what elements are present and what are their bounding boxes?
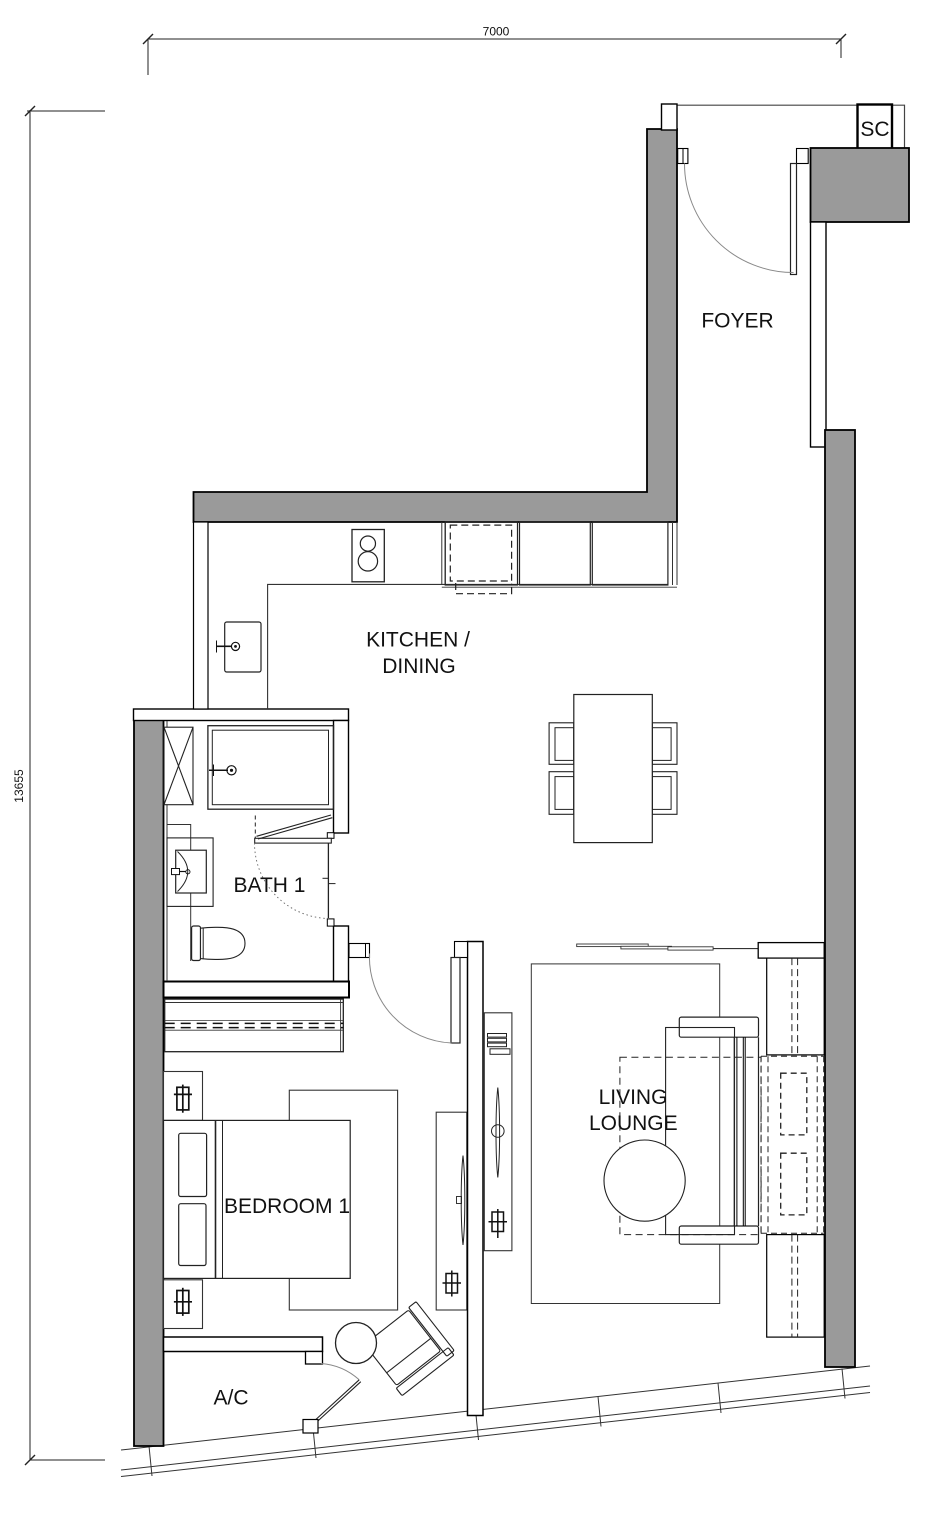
svg-text:LIVING: LIVING (599, 1086, 668, 1109)
svg-text:DINING: DINING (382, 655, 456, 678)
svg-text:7000: 7000 (483, 25, 510, 39)
svg-text:BEDROOM 1: BEDROOM 1 (224, 1195, 350, 1218)
svg-text:LOUNGE: LOUNGE (589, 1112, 678, 1135)
svg-text:13655: 13655 (12, 769, 26, 803)
svg-text:FOYER: FOYER (701, 310, 773, 333)
svg-text:SC: SC (860, 118, 889, 141)
svg-text:BATH 1: BATH 1 (234, 874, 306, 897)
svg-text:KITCHEN /: KITCHEN / (366, 629, 470, 652)
svg-text:A/C: A/C (213, 1387, 248, 1410)
